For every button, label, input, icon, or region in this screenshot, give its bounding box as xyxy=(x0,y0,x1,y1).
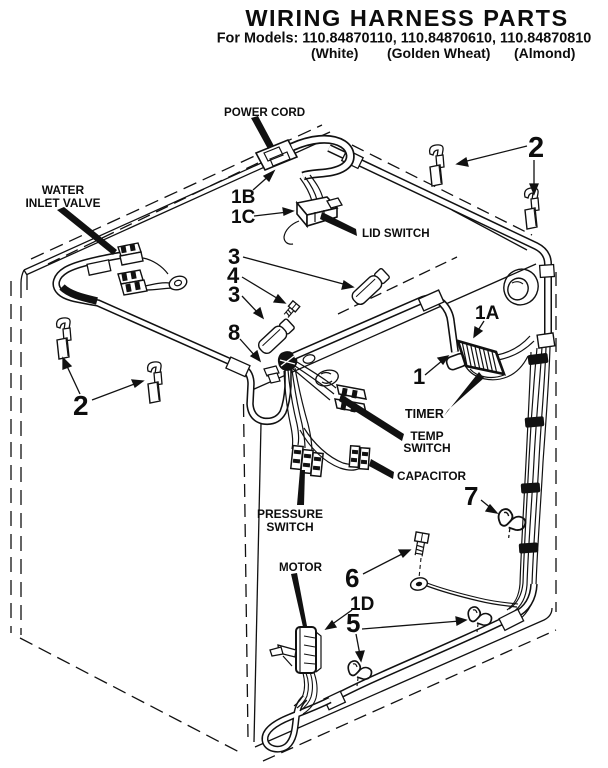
svg-text:SWITCH: SWITCH xyxy=(403,441,450,455)
svg-text:1A: 1A xyxy=(475,303,500,324)
svg-text:5: 5 xyxy=(346,608,360,638)
svg-text:CAPACITOR: CAPACITOR xyxy=(397,469,467,483)
svg-text:2: 2 xyxy=(73,390,89,421)
svg-text:WATER: WATER xyxy=(42,183,85,197)
svg-text:6: 6 xyxy=(345,563,359,593)
svg-text:1: 1 xyxy=(413,364,425,389)
svg-text:2: 2 xyxy=(528,132,544,164)
svg-text:TIMER: TIMER xyxy=(405,407,444,421)
svg-text:WIRING HARNESS PARTS: WIRING HARNESS PARTS xyxy=(245,5,568,31)
svg-text:MOTOR: MOTOR xyxy=(279,561,323,574)
svg-text:LID SWITCH: LID SWITCH xyxy=(362,227,430,240)
svg-text:PRESSURE: PRESSURE xyxy=(257,507,323,521)
svg-text:7: 7 xyxy=(464,481,478,511)
svg-text:POWER CORD: POWER CORD xyxy=(224,106,305,119)
svg-text:1C: 1C xyxy=(231,207,256,228)
svg-text:(Almond): (Almond) xyxy=(514,45,575,61)
svg-text:3: 3 xyxy=(228,282,240,307)
svg-text:8: 8 xyxy=(228,320,240,345)
svg-text:(Golden Wheat): (Golden Wheat) xyxy=(387,45,490,61)
svg-text:(White): (White) xyxy=(311,45,358,61)
svg-text:SWITCH: SWITCH xyxy=(266,520,313,534)
svg-text:1B: 1B xyxy=(231,187,255,208)
